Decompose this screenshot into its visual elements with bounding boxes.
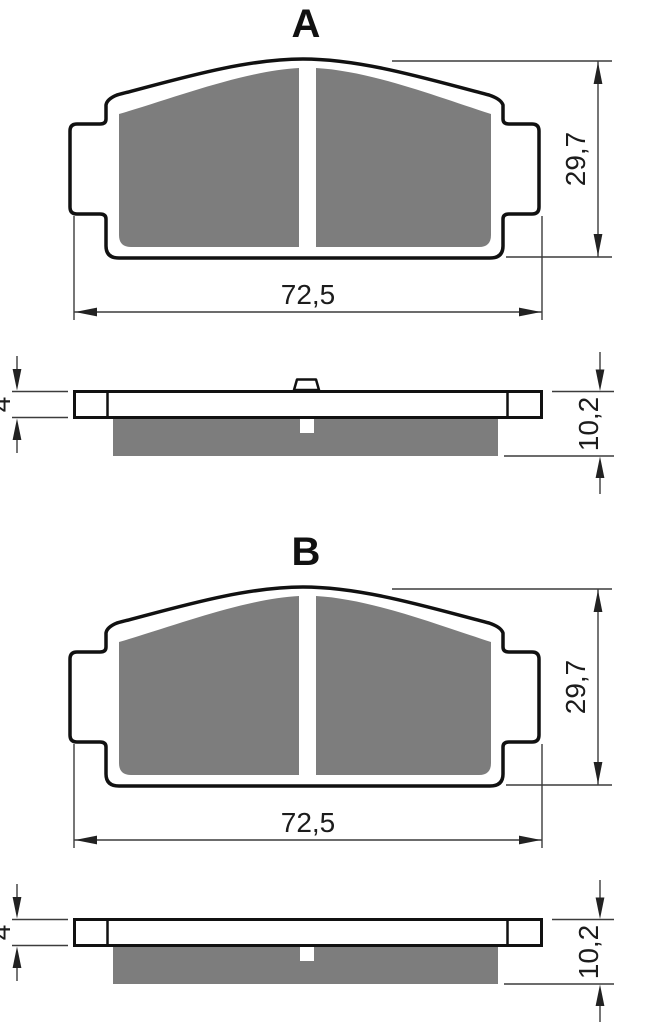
arrowhead-up-icon (596, 985, 605, 1007)
arrowhead-up-icon (594, 62, 603, 84)
arrowhead-down-icon (13, 369, 22, 391)
arrowhead-left-icon (75, 308, 97, 317)
pad-b-total-thickness-label: 10,2 (573, 925, 604, 980)
arrowhead-down-icon (596, 370, 605, 392)
arrowhead-up-icon (13, 419, 22, 441)
pad-b-front-view: 29,7 72,5 (70, 587, 612, 848)
pad-a-side-view: 4 10,2 (0, 352, 614, 494)
drawing-canvas: A 29,7 72,5 (0, 0, 669, 1024)
pad-a-front-view: 29,7 72,5 (70, 59, 612, 320)
pad-a-width-label: 72,5 (281, 279, 336, 310)
arrowhead-right-icon (519, 836, 541, 845)
arrowhead-left-icon (75, 836, 97, 845)
section-b: B 29,7 72,5 (0, 530, 614, 1022)
pad-a-side-friction (113, 418, 498, 457)
pad-a-height-label: 29,7 (560, 132, 591, 187)
arrowhead-right-icon (519, 308, 541, 317)
pad-b-side-friction (113, 946, 498, 985)
arrowhead-up-icon (13, 947, 22, 969)
pad-a-total-thickness-dimension: 10,2 (504, 352, 614, 494)
section-a-title: A (292, 2, 321, 46)
section-b-title: B (292, 530, 321, 574)
arrowhead-up-icon (594, 590, 603, 612)
brake-pad-drawing: A 29,7 72,5 (0, 0, 669, 1024)
pad-a-total-thickness-label: 10,2 (573, 397, 604, 452)
pad-b-width-label: 72,5 (281, 807, 336, 838)
pad-b-plate-thickness-label: 4 (0, 925, 16, 941)
arrowhead-down-icon (13, 897, 22, 919)
arrowhead-down-icon (596, 898, 605, 920)
pad-b-side-view: 4 10,2 (0, 880, 614, 1022)
pad-b-height-label: 29,7 (560, 660, 591, 715)
pad-b-total-thickness-dimension: 10,2 (504, 880, 614, 1022)
arrowhead-down-icon (594, 234, 603, 256)
pad-a-center-tab (294, 380, 319, 391)
arrowhead-down-icon (594, 762, 603, 784)
arrowhead-up-icon (596, 457, 605, 479)
section-a: A 29,7 72,5 (0, 2, 614, 494)
pad-b-backing-plate (75, 920, 542, 946)
pad-b-plate-thickness-dimension: 4 (0, 884, 68, 981)
pad-a-plate-thickness-label: 4 (0, 397, 16, 413)
pad-a-plate-thickness-dimension: 4 (0, 356, 68, 453)
pad-a-backing-plate (75, 392, 542, 418)
